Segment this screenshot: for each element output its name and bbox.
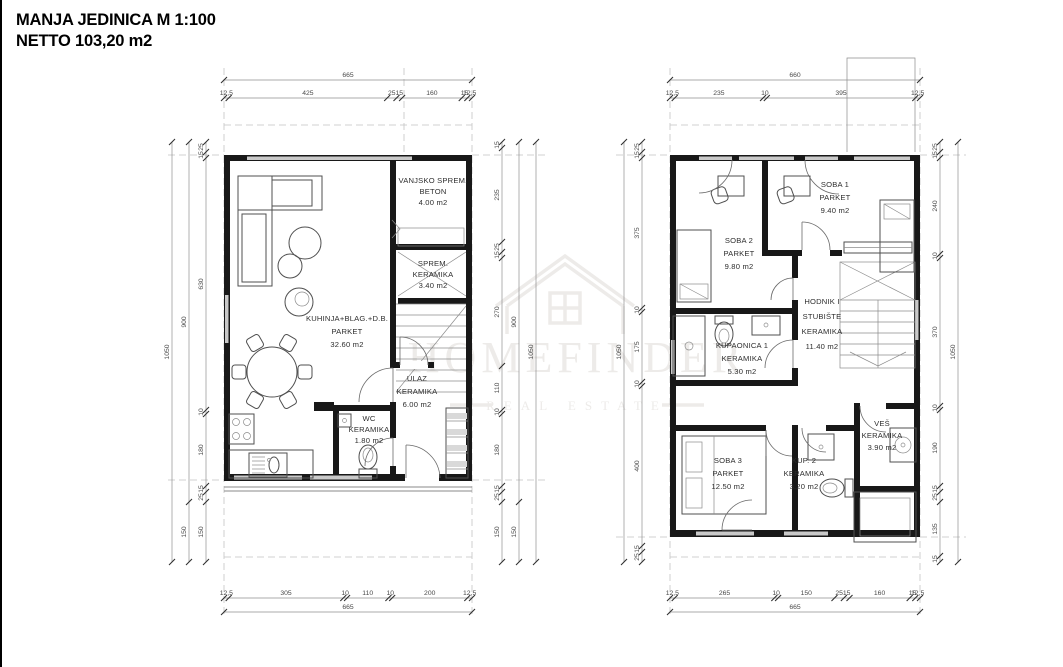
svg-text:10: 10	[772, 590, 780, 597]
svg-text:STUBIŠTE: STUBIŠTE	[803, 312, 842, 321]
svg-text:3.20 m2: 3.20 m2	[790, 482, 819, 491]
room-label-kuhinja: KUHINJA+BLAG.+D.B. PARKET 32.60 m2	[306, 314, 388, 349]
svg-text:SOBA 1: SOBA 1	[821, 180, 849, 189]
svg-text:10: 10	[341, 590, 349, 597]
svg-text:PARKET: PARKET	[723, 249, 754, 258]
coffee-tables	[278, 227, 321, 278]
svg-text:5.30 m2: 5.30 m2	[728, 367, 757, 376]
room-label-sprem: SPREM. KERAMIKA 3.40 m2	[413, 259, 455, 290]
svg-text:15: 15	[395, 90, 403, 97]
svg-text:425: 425	[302, 90, 314, 97]
svg-text:15: 15	[932, 555, 939, 563]
svg-text:WC: WC	[362, 414, 375, 423]
bed-soba2	[677, 230, 711, 302]
svg-text:25: 25	[198, 493, 205, 501]
svg-text:12,5: 12,5	[666, 90, 679, 97]
dimension-chain: 1050	[164, 139, 175, 565]
svg-text:1050: 1050	[164, 344, 171, 359]
svg-text:KERAMIKA: KERAMIKA	[349, 425, 391, 434]
svg-text:395: 395	[835, 90, 847, 97]
svg-text:15: 15	[843, 590, 851, 597]
svg-text:12,5: 12,5	[911, 90, 924, 97]
hallway-shelf	[844, 242, 912, 253]
svg-text:25: 25	[932, 493, 939, 501]
svg-text:150: 150	[198, 526, 205, 538]
svg-text:10: 10	[932, 252, 939, 260]
drawing-canvas: HOMEFINDER REAL ESTATE	[2, 0, 1063, 667]
svg-text:25: 25	[634, 553, 641, 561]
svg-text:235: 235	[713, 90, 725, 97]
room-label-kup2: KUP. 2 KERAMIKA 3.20 m2	[784, 456, 826, 491]
desk-chair-soba2	[710, 176, 744, 205]
svg-text:6.00 m2: 6.00 m2	[403, 400, 432, 409]
svg-text:15: 15	[494, 251, 501, 259]
svg-text:KUPAONICA 1: KUPAONICA 1	[716, 341, 768, 350]
svg-text:110: 110	[362, 590, 373, 597]
svg-text:HODNIK I: HODNIK I	[804, 297, 839, 306]
room-label-wc: WC KERAMIKA 1.80 m2	[349, 414, 391, 445]
svg-text:4.00 m2: 4.00 m2	[419, 198, 448, 207]
bed-soba1	[880, 200, 914, 272]
svg-text:SOBA 3: SOBA 3	[714, 456, 742, 465]
svg-text:12,5: 12,5	[666, 590, 679, 597]
svg-text:12.50 m2: 12.50 m2	[711, 482, 744, 491]
svg-text:9.40 m2: 9.40 m2	[821, 206, 850, 215]
svg-text:PARKET: PARKET	[819, 193, 850, 202]
svg-text:10: 10	[634, 380, 641, 388]
svg-text:PARKET: PARKET	[712, 469, 743, 478]
svg-text:375: 375	[634, 227, 641, 239]
watermark-name: HOMEFINDER	[408, 333, 746, 382]
svg-text:630: 630	[198, 278, 205, 290]
svg-text:150: 150	[494, 526, 501, 538]
svg-text:KERAMIKA: KERAMIKA	[802, 327, 844, 336]
floor-stairs	[840, 262, 915, 368]
svg-text:665: 665	[342, 604, 354, 611]
svg-text:1.80 m2: 1.80 m2	[355, 436, 384, 445]
svg-text:305: 305	[280, 590, 292, 597]
dimension-chain: 12,542525151601512,5	[220, 90, 477, 101]
dimension-chain: 665	[667, 604, 923, 615]
svg-text:110: 110	[494, 382, 501, 393]
dimension-chain: 12,52351039512,5	[666, 90, 925, 101]
svg-text:25: 25	[932, 143, 939, 151]
svg-text:265: 265	[719, 590, 731, 597]
svg-text:150: 150	[181, 526, 188, 538]
desk-chair-soba1	[776, 176, 810, 205]
svg-text:KERAMIKA: KERAMIKA	[722, 354, 764, 363]
svg-text:KERAMIKA: KERAMIKA	[413, 270, 455, 279]
svg-text:12,5: 12,5	[463, 590, 476, 597]
svg-text:270: 270	[494, 306, 501, 318]
svg-text:11.40 m2: 11.40 m2	[806, 342, 839, 351]
svg-text:400: 400	[634, 460, 641, 472]
svg-text:160: 160	[874, 590, 886, 597]
svg-text:KUHINJA+BLAG.+D.B.: KUHINJA+BLAG.+D.B.	[306, 314, 388, 323]
svg-text:135: 135	[932, 523, 939, 535]
svg-text:9.80 m2: 9.80 m2	[725, 262, 754, 271]
svg-text:15: 15	[932, 151, 939, 159]
svg-text:12,5: 12,5	[911, 590, 924, 597]
dimension-chain: 665	[221, 72, 475, 83]
roof-projection-line	[847, 58, 915, 152]
svg-text:15: 15	[634, 545, 641, 553]
room-label-soba2: SOBA 2 PARKET 9.80 m2	[723, 236, 754, 271]
dimension-chain: 12,5305101101020012,5	[220, 590, 477, 601]
svg-text:12,5: 12,5	[463, 90, 476, 97]
dimension-chain: 665	[221, 604, 475, 615]
svg-text:15: 15	[494, 485, 501, 493]
dimension-chain: 2515630101801525150	[198, 139, 209, 565]
svg-text:160: 160	[426, 90, 438, 97]
room-label-vanjsko-sprem: VANJSKO SPREM. BETON 4.00 m2	[399, 176, 468, 207]
floorplan-sheet: MANJA JEDINICA M 1:100 NETTO 103,20 m2 H…	[0, 0, 1063, 667]
svg-text:PARKET: PARKET	[331, 327, 362, 336]
svg-text:150: 150	[801, 590, 813, 597]
watermark-tagline: REAL ESTATE	[486, 398, 668, 413]
svg-text:1050: 1050	[950, 344, 957, 359]
svg-text:12,5: 12,5	[220, 90, 233, 97]
svg-text:900: 900	[511, 316, 518, 328]
svg-text:SOBA 2: SOBA 2	[725, 236, 753, 245]
svg-text:3.90 m2: 3.90 m2	[868, 443, 897, 452]
room-label-ves: VEŠ KERAMIKA 3.90 m2	[862, 419, 904, 452]
dimension-chain: 12,52651015025151601512,5	[666, 590, 925, 601]
wc-toilet	[338, 414, 377, 478]
room-label-soba3: SOBA 3 PARKET 12.50 m2	[711, 456, 744, 491]
svg-text:25: 25	[494, 493, 501, 501]
svg-text:10: 10	[634, 306, 641, 314]
room-label-soba1: SOBA 1 PARKET 9.40 m2	[819, 180, 850, 215]
svg-text:10: 10	[494, 408, 501, 416]
svg-text:12,5: 12,5	[220, 590, 233, 597]
svg-text:32.60 m2: 32.60 m2	[330, 340, 363, 349]
armchair	[285, 288, 313, 316]
ground-terrace-parapet	[224, 487, 472, 491]
svg-text:240: 240	[932, 200, 939, 212]
svg-text:15: 15	[198, 485, 205, 493]
svg-text:KERAMIKA: KERAMIKA	[784, 469, 826, 478]
svg-text:KUP. 2: KUP. 2	[792, 456, 816, 465]
svg-text:15: 15	[634, 151, 641, 159]
watermark: HOMEFINDER REAL ESTATE	[408, 256, 746, 413]
sofa	[238, 176, 322, 286]
svg-text:KERAMIKA: KERAMIKA	[397, 387, 439, 396]
svg-text:SPREM.: SPREM.	[418, 259, 448, 268]
svg-text:10: 10	[932, 404, 939, 412]
svg-text:180: 180	[198, 444, 205, 456]
svg-text:BETON: BETON	[419, 187, 446, 196]
svg-text:150: 150	[511, 526, 518, 538]
kitchen-stove	[229, 414, 254, 444]
svg-text:25: 25	[494, 243, 501, 251]
svg-text:370: 370	[932, 326, 939, 338]
dimension-chain: 25152401037010190152513515	[932, 139, 943, 565]
svg-text:15: 15	[198, 151, 205, 159]
svg-text:200: 200	[424, 590, 436, 597]
svg-text:1050: 1050	[528, 344, 535, 359]
entry-wardrobe	[446, 408, 468, 478]
svg-text:ULAZ: ULAZ	[407, 374, 427, 383]
svg-text:175: 175	[634, 341, 641, 353]
svg-text:3.40 m2: 3.40 m2	[419, 281, 448, 290]
svg-text:660: 660	[789, 72, 801, 79]
svg-text:10: 10	[761, 90, 769, 97]
svg-text:10: 10	[198, 408, 205, 416]
dimension-chain: 1050	[950, 139, 961, 565]
svg-text:25: 25	[198, 143, 205, 151]
dining-table	[232, 333, 312, 409]
svg-text:KERAMIKA: KERAMIKA	[862, 431, 904, 440]
room-label-hodnik: HODNIK I STUBIŠTE KERAMIKA 11.40 m2	[802, 297, 844, 351]
svg-text:15: 15	[494, 141, 501, 149]
svg-text:665: 665	[789, 604, 801, 611]
svg-text:25: 25	[634, 143, 641, 151]
svg-text:235: 235	[494, 189, 501, 201]
svg-text:15: 15	[932, 485, 939, 493]
svg-text:VEŠ: VEŠ	[874, 419, 890, 428]
kitchen-counter-sink	[229, 450, 313, 478]
dimension-chain: 900150	[181, 139, 192, 565]
svg-text:10: 10	[386, 590, 394, 597]
dimension-chain: 660	[667, 72, 923, 83]
svg-text:665: 665	[342, 72, 354, 79]
svg-text:190: 190	[932, 442, 939, 454]
svg-text:1050: 1050	[616, 344, 623, 359]
svg-text:180: 180	[494, 444, 501, 456]
svg-text:VANJSKO SPREM.: VANJSKO SPREM.	[399, 176, 468, 185]
svg-text:900: 900	[181, 316, 188, 328]
